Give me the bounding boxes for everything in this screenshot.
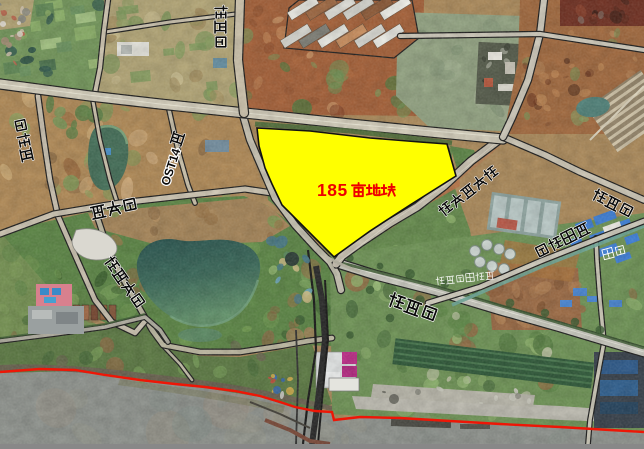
svg-text:185: 185	[317, 180, 348, 200]
